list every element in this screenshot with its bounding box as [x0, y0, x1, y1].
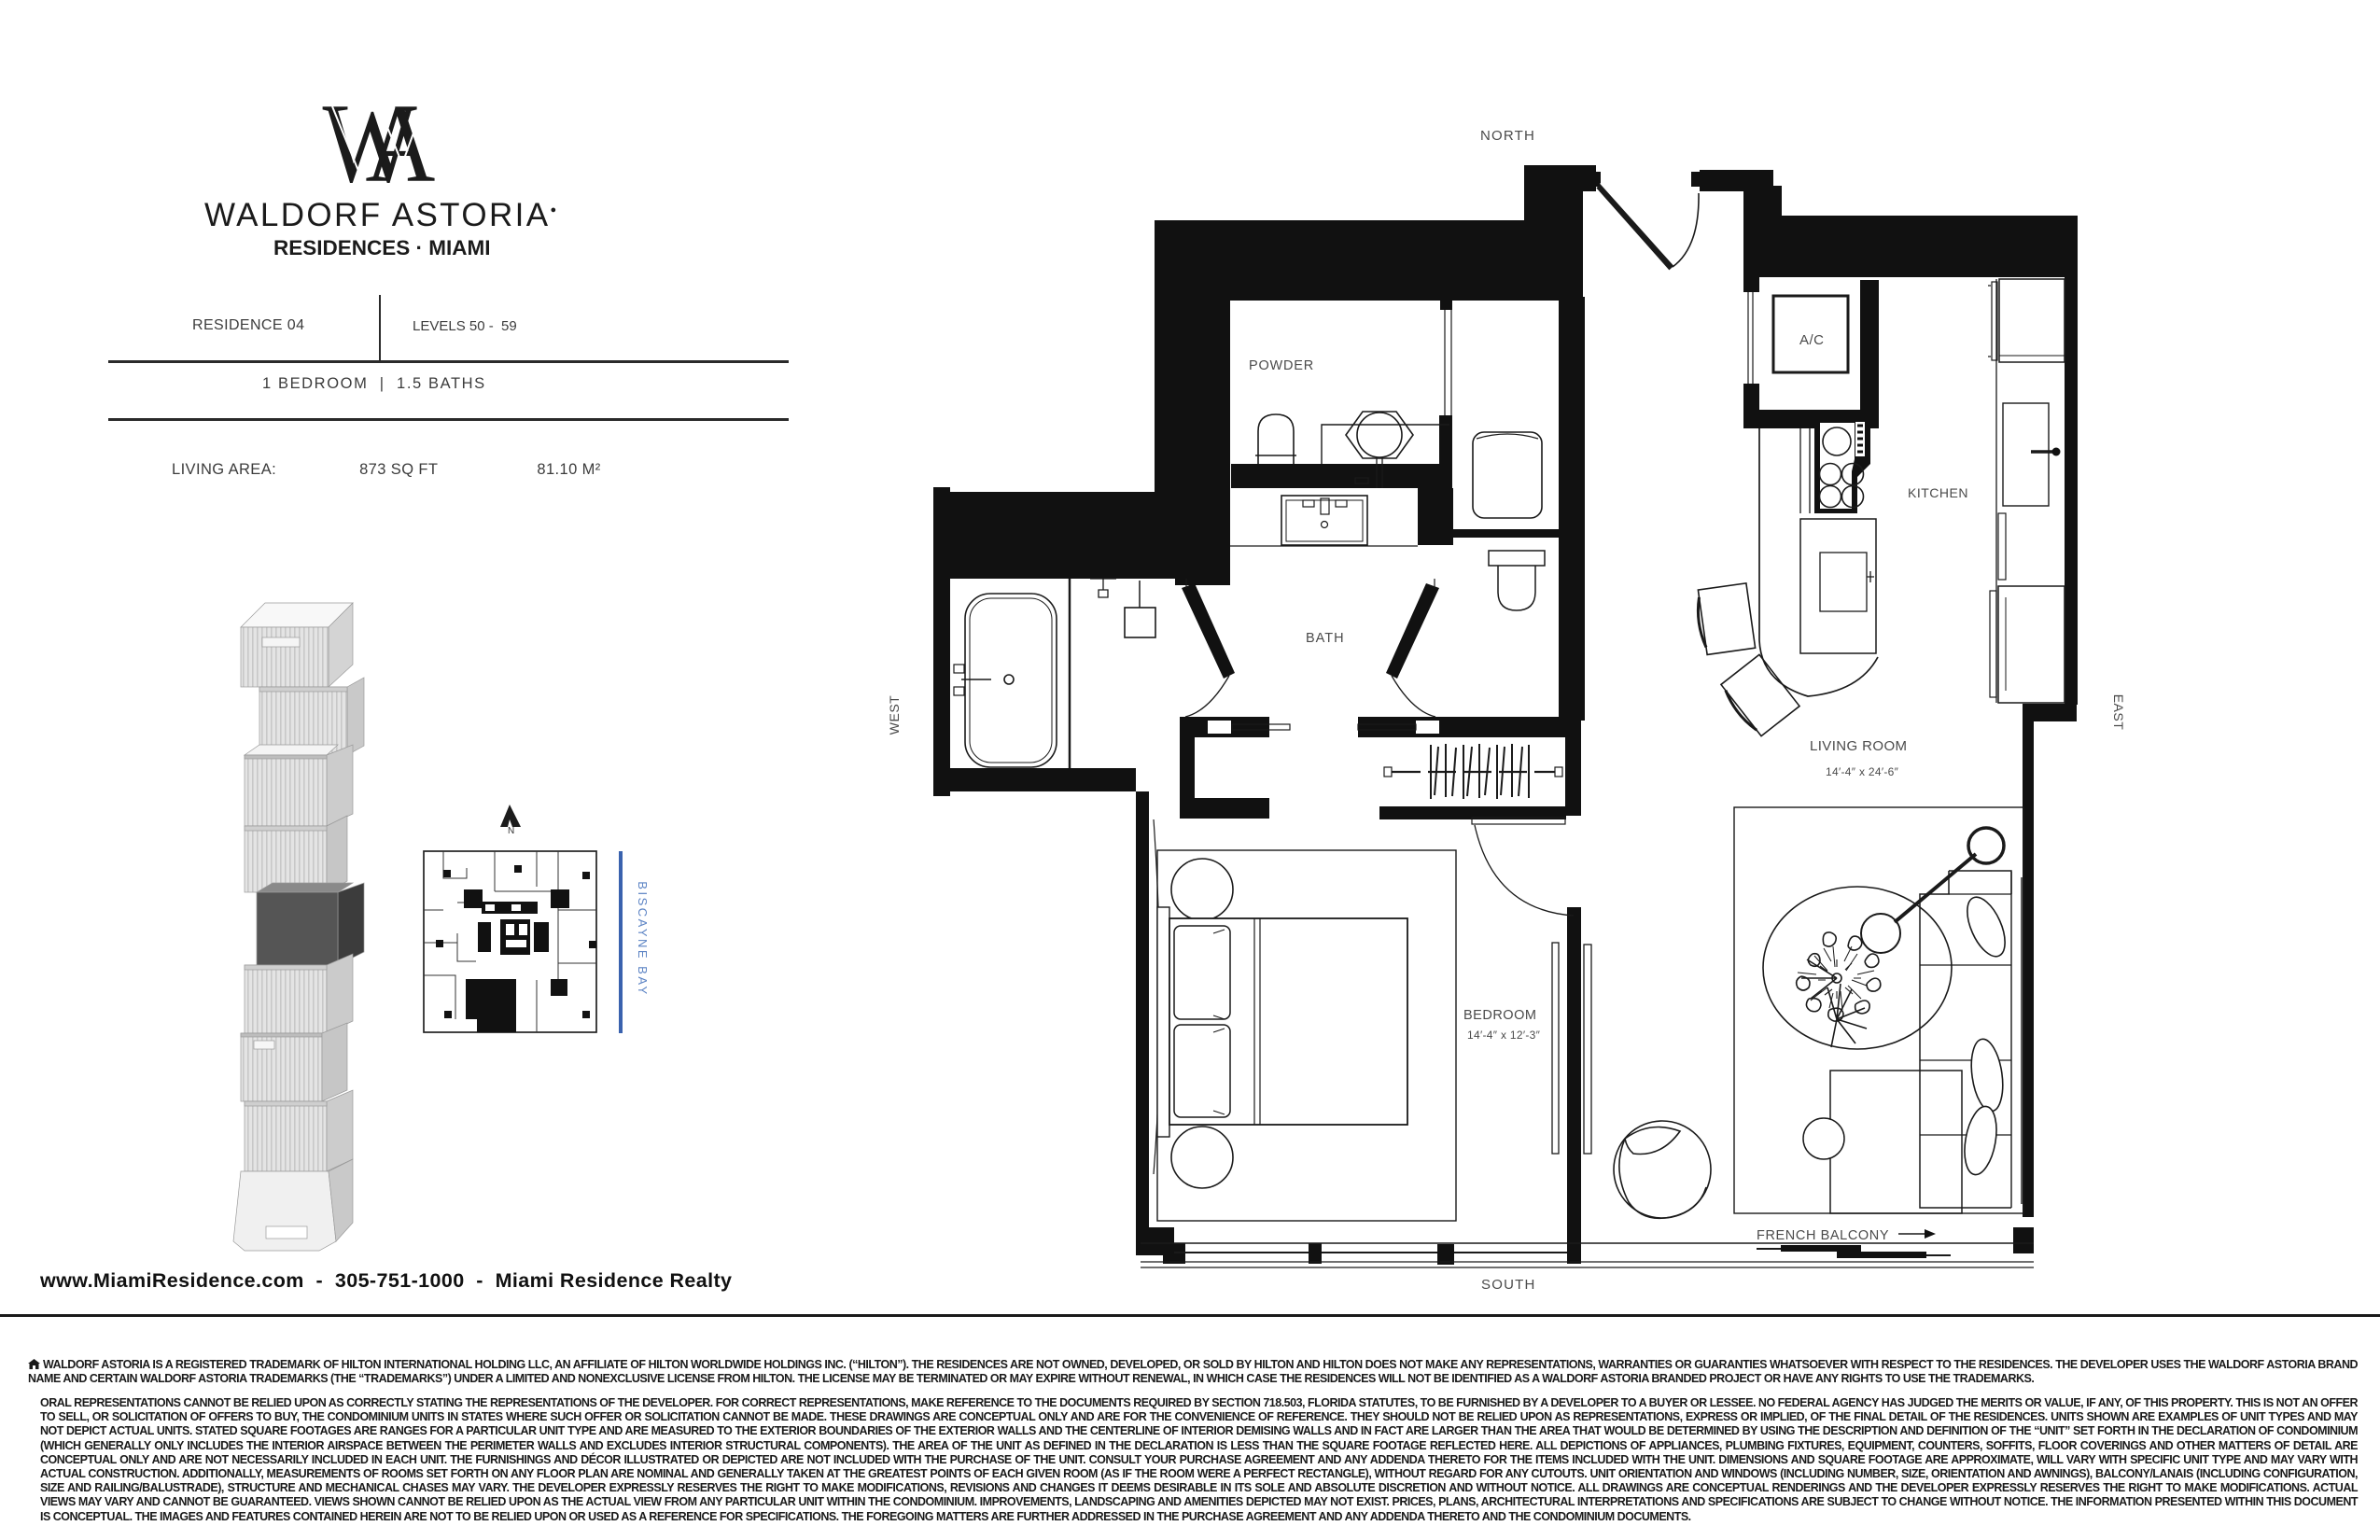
svg-text:KITCHEN: KITCHEN: [1908, 485, 1968, 500]
svg-text:WEST: WEST: [887, 695, 902, 735]
svg-text:14′-4″ x 24′-6″: 14′-4″ x 24′-6″: [1826, 765, 1899, 778]
svg-text:A: A: [365, 84, 435, 194]
svg-text:POWDER: POWDER: [1249, 358, 1314, 373]
svg-text:BISCAYNE BAY: BISCAYNE BAY: [636, 881, 650, 996]
svg-text:14′-4″ x 12′-3″: 14′-4″ x 12′-3″: [1467, 1029, 1541, 1042]
svg-text:BEDROOM: BEDROOM: [1463, 1008, 1536, 1023]
svg-text:EAST: EAST: [2111, 694, 2126, 731]
svg-text:A/C: A/C: [1799, 332, 1825, 348]
svg-text:SOUTH: SOUTH: [1481, 1277, 1536, 1293]
svg-text:LIVING ROOM: LIVING ROOM: [1810, 738, 1907, 754]
svg-text:N: N: [508, 826, 514, 836]
svg-text:FRENCH BALCONY: FRENCH BALCONY: [1757, 1228, 1889, 1243]
svg-text:BATH: BATH: [1306, 631, 1345, 646]
svg-text:NORTH: NORTH: [1480, 128, 1535, 144]
